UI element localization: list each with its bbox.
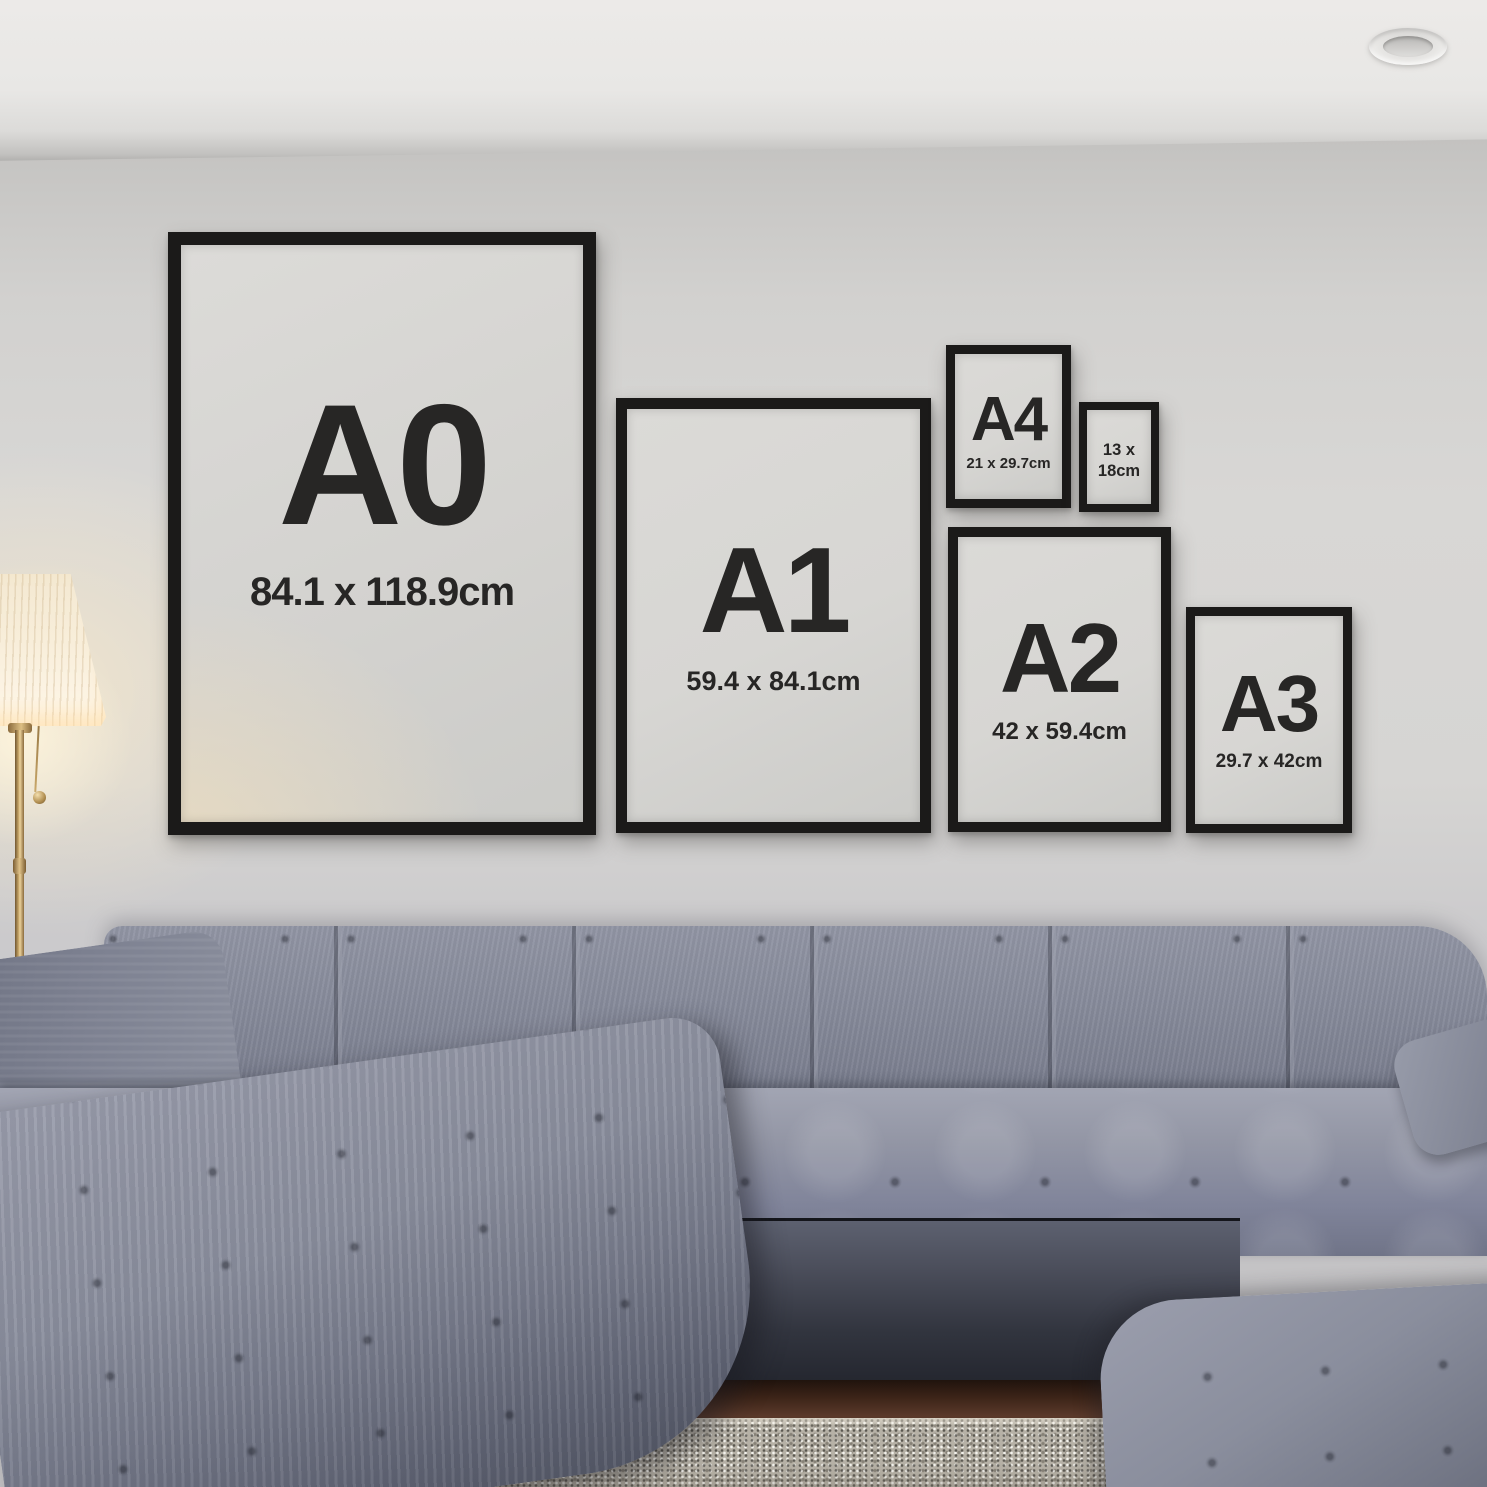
lamp-pole-joint bbox=[13, 858, 26, 874]
recessed-ceiling-light bbox=[1369, 28, 1447, 65]
poster-frame-a4: A4 21 x 29.7cm bbox=[946, 345, 1071, 508]
poster-frame-13x18: 13 x 18cm bbox=[1079, 402, 1159, 512]
poster-size-dimensions: 21 x 29.7cm bbox=[966, 455, 1050, 472]
poster-size-label: A0 bbox=[278, 386, 486, 544]
poster-size-label: A1 bbox=[700, 534, 848, 646]
poster-size-dimensions: 84.1 x 118.9cm bbox=[250, 570, 514, 615]
poster-frame-a0: A0 84.1 x 118.9cm bbox=[168, 232, 596, 835]
poster-size-label: A2 bbox=[1000, 613, 1119, 703]
poster-frame-a1: A1 59.4 x 84.1cm bbox=[616, 398, 931, 833]
poster-size-label: A4 bbox=[971, 391, 1046, 448]
sofa-right-chaise bbox=[1097, 1281, 1487, 1487]
poster-size-dimensions: 29.7 x 42cm bbox=[1216, 751, 1323, 773]
ceiling-light-inner-ring bbox=[1383, 36, 1433, 57]
lamp-pole bbox=[15, 730, 24, 962]
poster-size-dimensions: 59.4 x 84.1cm bbox=[686, 666, 860, 697]
poster-frame-a3: A3 29.7 x 42cm bbox=[1186, 607, 1352, 833]
ceiling bbox=[0, 0, 1487, 164]
living-room-scene: A0 84.1 x 118.9cm A1 59.4 x 84.1cm A4 21… bbox=[0, 0, 1487, 1487]
poster-size-dimensions: 42 x 59.4cm bbox=[992, 718, 1127, 746]
lamp-pull-chain-ball bbox=[33, 791, 46, 804]
poster-frame-a2: A2 42 x 59.4cm bbox=[948, 527, 1171, 832]
poster-size-dimensions: 13 x 18cm bbox=[1098, 440, 1140, 481]
poster-size-label: A3 bbox=[1220, 667, 1318, 741]
